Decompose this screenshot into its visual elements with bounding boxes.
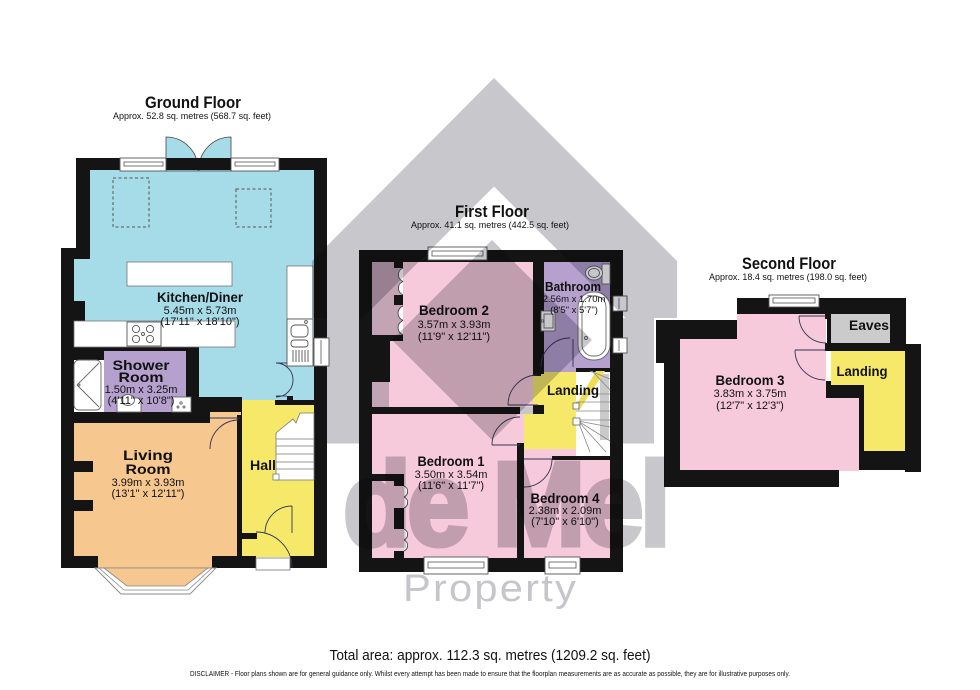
svg-text:Second Floor: Second Floor: [742, 254, 836, 273]
svg-text:Approx. 52.8 sq. metres (568.7: Approx. 52.8 sq. metres (568.7 sq. feet): [113, 111, 271, 122]
svg-text:Room: Room: [126, 461, 171, 477]
svg-text:DISCLAIMER - Floor plans show: DISCLAIMER - Floor plans shown are for g…: [190, 671, 790, 678]
svg-text:Landing: Landing: [837, 363, 888, 379]
svg-text:(13'1" x 12'11"): (13'1" x 12'11"): [112, 488, 185, 500]
svg-text:Approx. 18.4 sq. metres (198.0: Approx. 18.4 sq. metres (198.0 sq. feet): [709, 272, 867, 283]
svg-text:Landing: Landing: [547, 382, 599, 398]
svg-text:(4'11" x 10'8"): (4'11" x 10'8"): [108, 395, 175, 407]
svg-text:Ground Floor: Ground Floor: [145, 93, 241, 112]
svg-text:(12'7" x 12'3"): (12'7" x 12'3"): [716, 400, 784, 412]
svg-text:Bedroom 3: Bedroom 3: [716, 372, 785, 388]
svg-text:Eaves: Eaves: [849, 317, 889, 333]
svg-text:Hall: Hall: [250, 457, 276, 473]
svg-text:Total area: approx. 112.3 sq.: Total area: approx. 112.3 sq. metres (12…: [330, 647, 651, 664]
svg-text:de Mel: de Mel: [343, 438, 667, 571]
svg-text:(17'11" x 18'10"): (17'11" x 18'10"): [160, 316, 239, 328]
svg-text:Room: Room: [119, 369, 164, 385]
svg-text:3.83m x 3.75m: 3.83m x 3.75m: [714, 388, 787, 400]
svg-text:Kitchen/Diner: Kitchen/Diner: [157, 289, 244, 305]
